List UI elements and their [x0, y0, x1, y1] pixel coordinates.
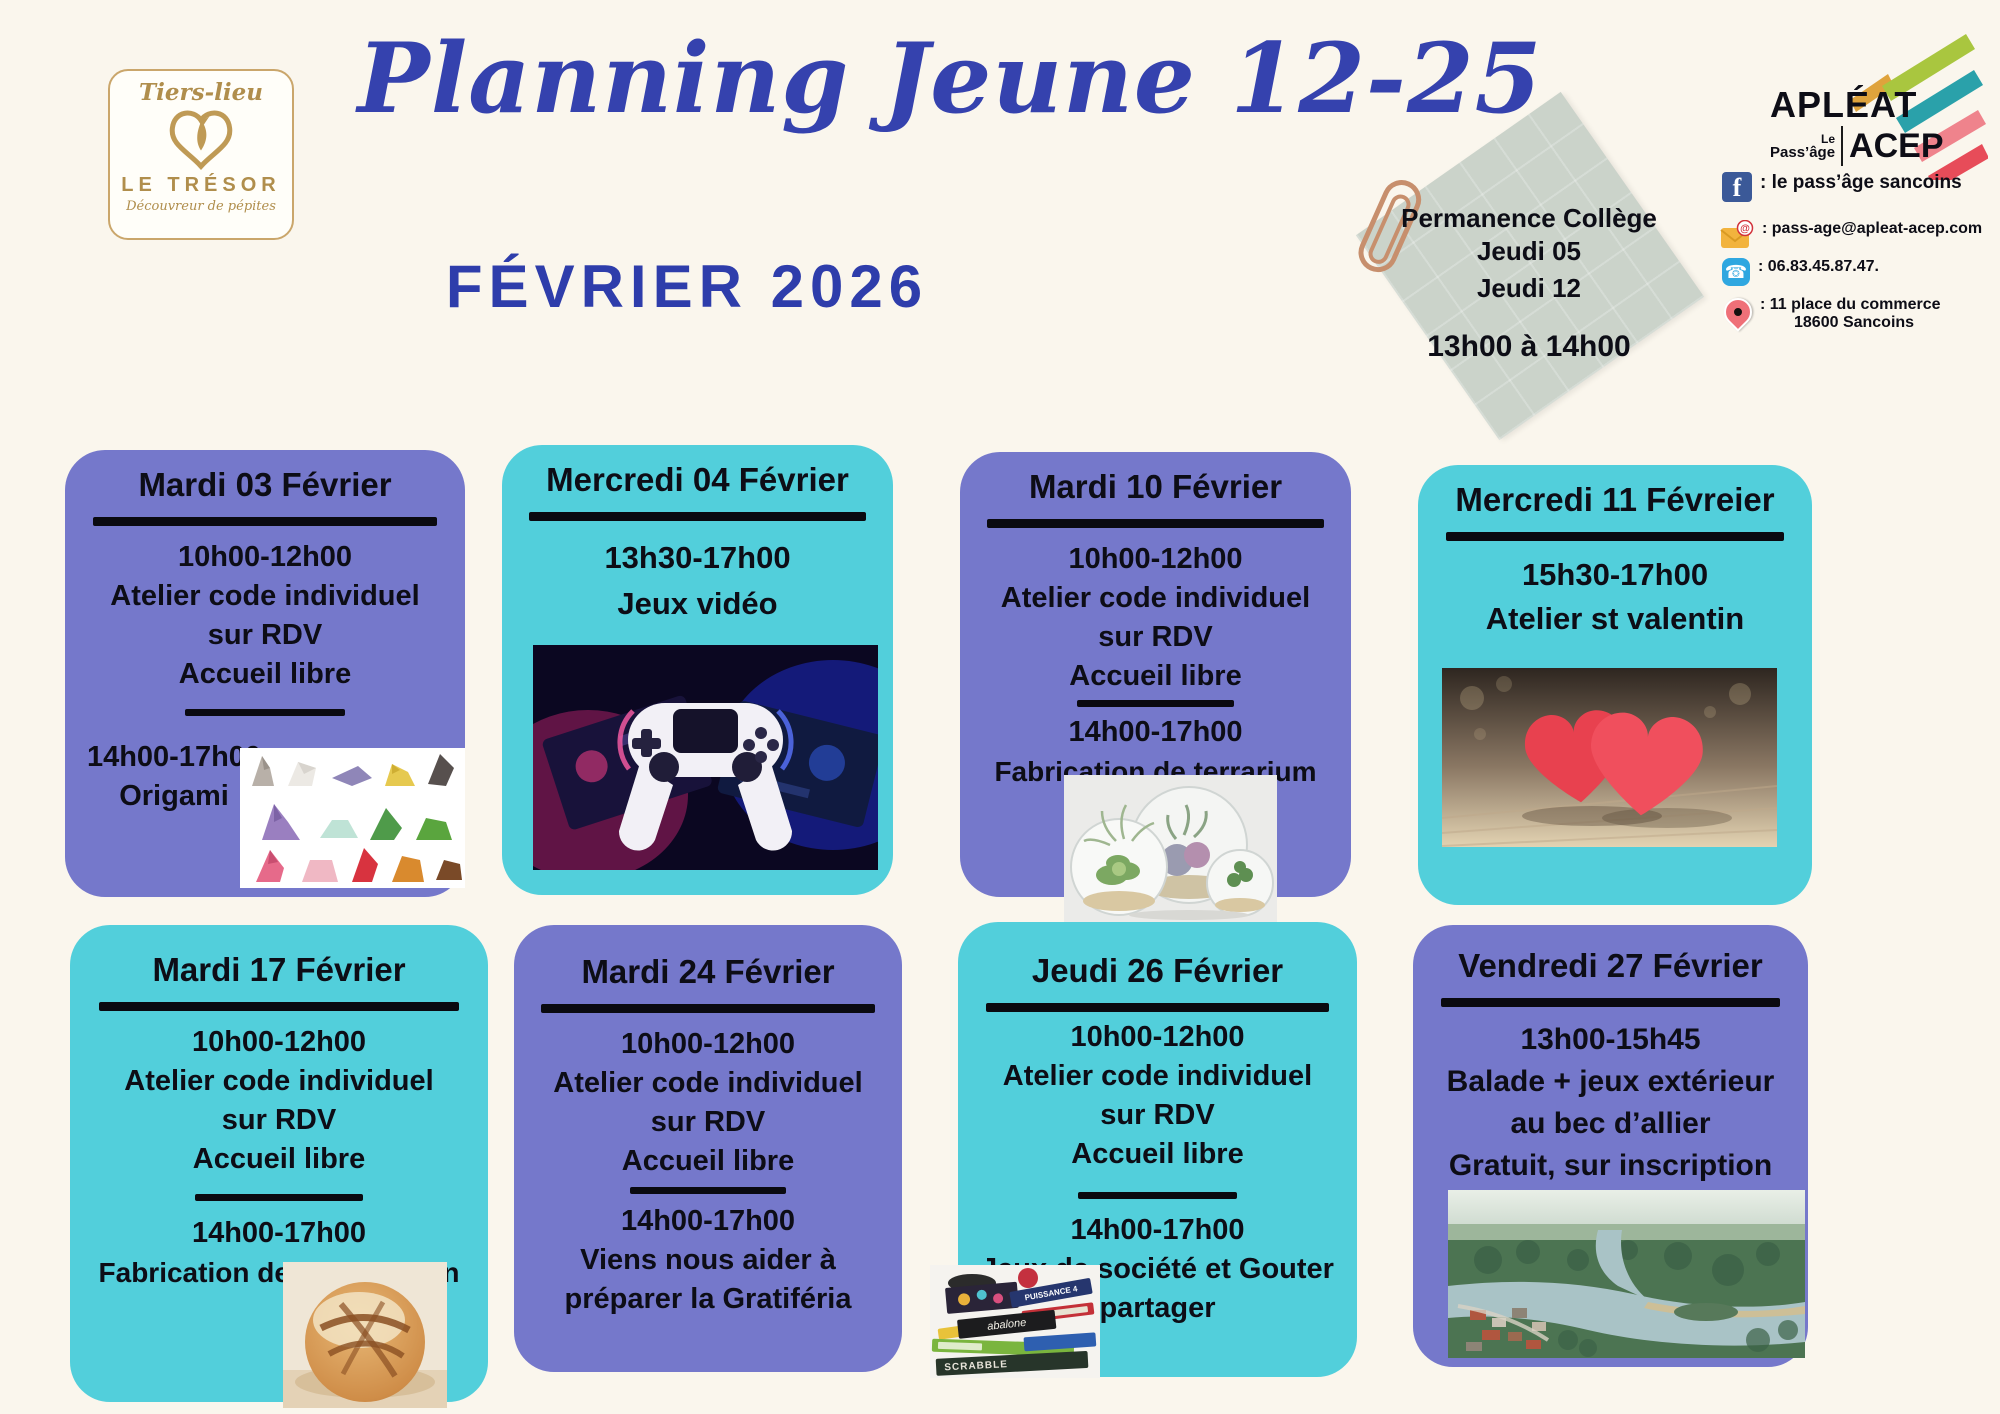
hearts-photo	[1442, 668, 1777, 847]
contact-phone-text: : 06.83.45.87.47.	[1758, 258, 1879, 276]
schedule-line: 15h30-17h00	[1418, 553, 1812, 597]
card-title: Mardi 03 Février	[65, 450, 465, 504]
divider-small	[195, 1194, 362, 1201]
bread-photo	[283, 1262, 447, 1408]
schedule-line: Viens nous aider à	[514, 1241, 902, 1280]
schedule-line: Atelier code individuel	[70, 1062, 488, 1101]
divider	[529, 512, 865, 521]
divider	[93, 517, 437, 526]
note-title: Permanence Collège	[1398, 203, 1660, 234]
brand-tiers-lieu: Tiers-lieu	[110, 79, 292, 106]
page-title: Planning Jeune 12-25	[325, 22, 1575, 135]
schedule-line: Balade + jeux extérieur	[1413, 1061, 1808, 1103]
divider	[541, 1004, 875, 1013]
tiers-lieu-logo-badge: Tiers-lieu LE TRÉSOR Découvreur de pépit…	[108, 69, 294, 240]
divider-small	[185, 709, 345, 716]
schedule-line: 14h00-17h00	[70, 1214, 488, 1253]
schedule-line: Atelier code individuel	[958, 1057, 1357, 1096]
divider-small	[1078, 1192, 1238, 1199]
schedule-line: 13h30-17h00	[502, 535, 893, 581]
note-line-jeudi-12: Jeudi 12	[1398, 273, 1660, 304]
board-games-photo: PUISSANCE 4 abalone SCRABBLE	[930, 1265, 1100, 1378]
schedule-line: Jeux vidéo	[502, 581, 893, 627]
card-title: Mercredi 11 Févreier	[1418, 465, 1812, 519]
schedule-line: Gratuit, sur inscription	[1413, 1145, 1808, 1187]
schedule-line: 10h00-12h00	[958, 1018, 1357, 1057]
contact-address-row: : 11 place du commerce 18600 Sancoins	[1724, 296, 1941, 332]
card-title: Mercredi 04 Février	[502, 445, 893, 499]
schedule-line: sur RDV	[958, 1096, 1357, 1135]
page-subtitle: FÉVRIER 2026	[427, 252, 947, 321]
schedule-line: Atelier st valentin	[1418, 597, 1812, 641]
divider	[99, 1002, 458, 1011]
org-logo-text: APLÉAT Le Pass’âge ACEP	[1770, 84, 1950, 166]
email-icon: @	[1720, 220, 1754, 250]
contact-address-line1: : 11 place du commerce	[1760, 296, 1941, 314]
divider-small	[630, 1187, 785, 1194]
card-title: Jeudi 26 Février	[958, 922, 1357, 990]
org-divider	[1841, 126, 1843, 166]
contact-phone-row: ☎ : 06.83.45.87.47.	[1722, 258, 1879, 286]
schedule-line: 10h00-12h00	[65, 538, 465, 577]
schedule-line: 14h00-17h00	[960, 713, 1351, 752]
divider	[1446, 532, 1785, 541]
note-line-jeudi-05: Jeudi 05	[1398, 236, 1660, 267]
brand-name: LE TRÉSOR	[110, 174, 292, 197]
schedule-line: Accueil libre	[65, 655, 465, 694]
org-pass-age-label: Le Pass’âge	[1770, 132, 1835, 160]
divider	[986, 1003, 1329, 1012]
contact-address-line2: 18600 Sancoins	[1794, 314, 1941, 332]
schedule-line: Accueil libre	[70, 1140, 488, 1179]
schedule-line: Accueil libre	[960, 657, 1351, 696]
schedule-line: au bec d’allier	[1413, 1103, 1808, 1145]
contact-facebook-row: f : le pass’âge sancoins	[1722, 172, 1962, 202]
org-name-acep: ACEP	[1849, 127, 1943, 166]
origami-photo	[240, 748, 465, 888]
schedule-line: Atelier code individuel	[65, 577, 465, 616]
facebook-icon: f	[1722, 172, 1752, 202]
divider	[1441, 998, 1781, 1007]
phoenix-logo-icon	[164, 106, 238, 172]
terrarium-photo	[1064, 775, 1277, 922]
schedule-line: 10h00-12h00	[70, 1023, 488, 1062]
schedule-line: 10h00-12h00	[514, 1025, 902, 1064]
card-title: Mardi 10 Février	[960, 452, 1351, 506]
schedule-line: sur RDV	[960, 618, 1351, 657]
card-mardi-24-fevrier: Mardi 24 Février 10h00-12h00 Atelier cod…	[514, 925, 902, 1372]
phone-icon: ☎	[1722, 258, 1750, 286]
divider-small	[1077, 700, 1233, 707]
divider	[987, 519, 1323, 528]
schedule-line: Accueil libre	[514, 1142, 902, 1181]
schedule-line: Atelier code individuel	[514, 1064, 902, 1103]
contact-email-text: : pass-age@apleat-acep.com	[1762, 220, 1982, 238]
card-title: Vendredi 27 Février	[1413, 925, 1808, 985]
schedule-line: sur RDV	[514, 1103, 902, 1142]
poster-page: Tiers-lieu LE TRÉSOR Découvreur de pépit…	[0, 0, 2000, 1414]
schedule-line: Atelier code individuel	[960, 579, 1351, 618]
card-title: Mardi 24 Février	[514, 925, 902, 991]
schedule-line: 14h00-17h00	[958, 1211, 1357, 1250]
note-time: 13h00 à 14h00	[1398, 330, 1660, 364]
schedule-line: sur RDV	[70, 1101, 488, 1140]
card-title: Mardi 17 Février	[70, 925, 488, 989]
schedule-line: sur RDV	[65, 616, 465, 655]
schedule-line: préparer la Gratiféria	[514, 1280, 902, 1319]
schedule-line: 10h00-12h00	[960, 540, 1351, 579]
game-controller-photo	[533, 645, 878, 870]
contact-email-row: @ : pass-age@apleat-acep.com	[1720, 220, 1982, 250]
note-text-block: Permanence Collège Jeudi 05 Jeudi 12 13h…	[1398, 203, 1660, 364]
river-photo	[1448, 1190, 1805, 1358]
schedule-line: Accueil libre	[958, 1135, 1357, 1174]
schedule-line: 13h00-15h45	[1413, 1019, 1808, 1061]
contact-facebook-text: : le pass’âge sancoins	[1760, 172, 1962, 194]
svg-text:@: @	[1740, 224, 1750, 235]
brand-tagline: Découvreur de pépites	[110, 199, 292, 214]
org-name-apleat: APLÉAT	[1770, 84, 1950, 126]
schedule-line: 14h00-17h00	[514, 1202, 902, 1241]
